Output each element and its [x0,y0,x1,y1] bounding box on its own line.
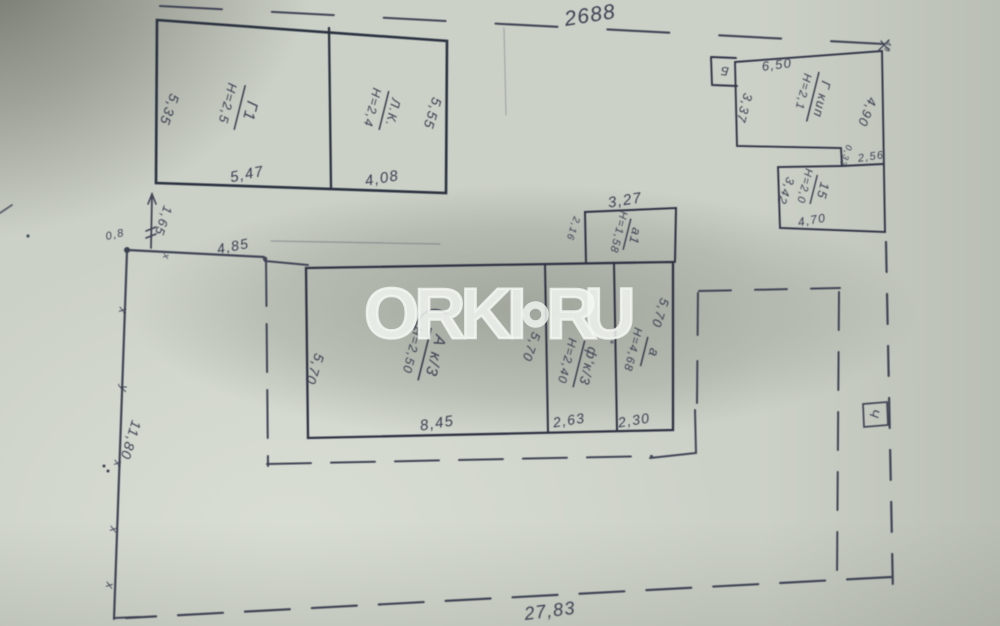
svg-text:ORKI: ORKI [364,275,528,354]
svg-text:RU: RU [546,275,637,354]
svg-text:Б: Б [719,64,730,79]
